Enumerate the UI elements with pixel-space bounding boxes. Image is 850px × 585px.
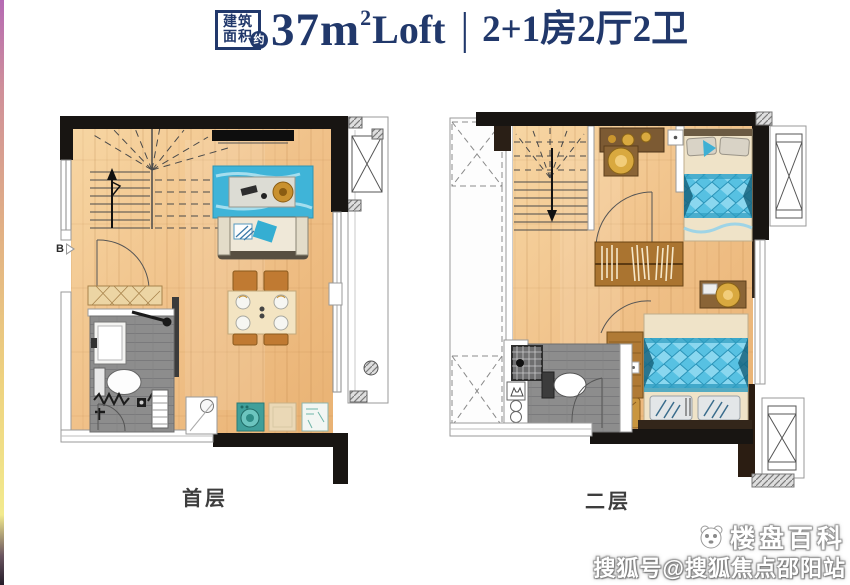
second-floor-plan: [450, 112, 806, 487]
elevator-shaft-icon: [348, 117, 388, 403]
shower-icon: [512, 346, 542, 380]
wall-segment: [61, 292, 71, 435]
bottom-wall-band: [450, 423, 592, 436]
fridge-icon: [302, 403, 328, 431]
shoe-cabinet-icon: [88, 286, 162, 305]
washing-machine-icon: [237, 403, 264, 431]
floorplan-drawing: [0, 0, 850, 585]
coffee-table-icon: [229, 177, 295, 207]
watermark-handle: 搜狐号@搜狐焦点邵阳站: [594, 551, 846, 583]
floorplan-page: 建筑 面积 约 37m 2 Loft | 2+1房2厅2卫: [0, 0, 850, 585]
second-floor-label: 二层: [585, 485, 631, 514]
wall-segment: [88, 309, 174, 316]
sink-icon: [91, 322, 126, 364]
first-floor-plan: [60, 116, 388, 484]
entry-arrow-icon: [66, 243, 75, 255]
bed-icon: [638, 314, 752, 429]
light-switch-icon: [668, 130, 683, 145]
toilet-icon: [94, 368, 141, 396]
nightstand-lamp-icon: [604, 146, 638, 176]
panda-logo-icon: [698, 524, 724, 550]
nightstand-lamp-icon: [700, 281, 746, 308]
cabinet-icon: [269, 403, 296, 431]
toilet-icon: [542, 372, 586, 398]
bathroom-second-floor: [504, 340, 632, 436]
window-icon: [61, 160, 71, 230]
entry-marker-label: B: [56, 243, 64, 255]
watermark: 楼盘百科 搜狐号@搜狐焦点邵阳站: [594, 523, 846, 583]
void-area: [450, 118, 506, 428]
bed-icon: [684, 129, 752, 241]
wall-segment: [61, 230, 71, 240]
wardrobe-icon: [595, 242, 683, 286]
wall-segment: [588, 126, 594, 230]
towel-rail-icon: [152, 390, 168, 428]
sofa-icon: [218, 217, 308, 259]
bathroom-first-floor: [90, 312, 174, 432]
watermark-brand: 楼盘百科: [730, 519, 846, 555]
kitchen-sink-icon: [186, 397, 217, 434]
first-floor-label: 首层: [182, 482, 228, 511]
entry-marker: B: [56, 243, 75, 255]
